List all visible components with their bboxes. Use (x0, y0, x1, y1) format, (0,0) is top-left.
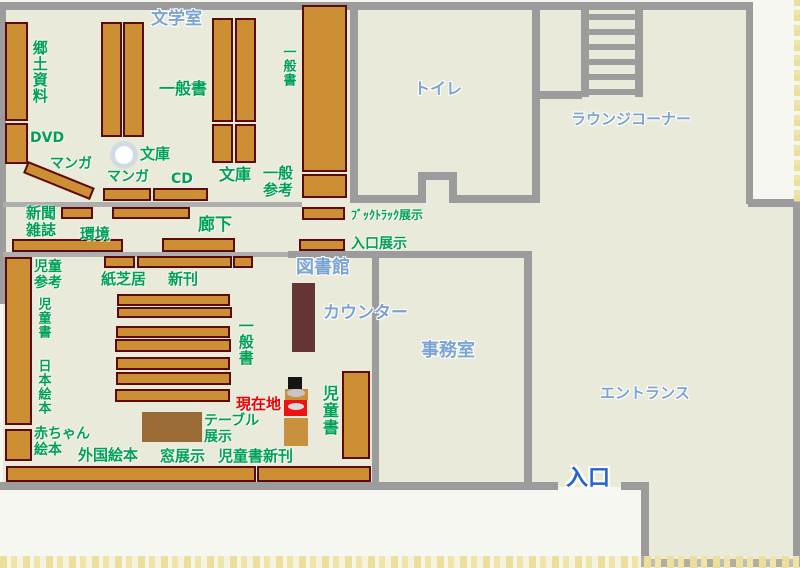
bookshelf (104, 256, 135, 268)
bookshelf (235, 124, 256, 163)
bookshelf (116, 326, 230, 338)
label-cd: CD (171, 172, 193, 188)
bookshelf (302, 5, 347, 172)
marker-sign-ellipse (288, 403, 304, 410)
label-japanese-picture-books: 日本絵本 (35, 359, 50, 415)
label-children-books-left: 児童書 (35, 297, 50, 339)
label-library: 図書館 (296, 258, 350, 278)
wall-vestibule-left (641, 483, 649, 567)
label-general-books-children: 一般書 (237, 318, 254, 366)
label-corridor: 廊下 (198, 216, 232, 235)
label-counter: カウンター (323, 304, 408, 323)
bookshelf (101, 22, 122, 137)
label-bunko-right: 文庫 (219, 166, 251, 184)
display-table (142, 412, 202, 442)
label-bunko-pillar: 文庫 (140, 146, 170, 163)
bookshelf (342, 371, 370, 459)
label-office: 事務室 (421, 341, 475, 361)
bookshelf (5, 257, 32, 425)
bookshelf (112, 207, 190, 219)
label-children-reference: 児童 参考 (34, 260, 62, 291)
label-table-display: テーブル 展示 (204, 414, 259, 445)
bookshelf (116, 372, 231, 385)
label-general-reference: 一般 参考 (263, 165, 293, 199)
label-environment: 環境 (80, 226, 110, 243)
label-window-display: 窓展示 (160, 448, 205, 465)
label-booktruck-display: ﾌﾞｯｸﾄﾗｯｸ展示 (351, 209, 423, 222)
label-local-materials: 郷土資料 (31, 40, 48, 104)
bookshelf (61, 207, 93, 219)
bookshelf (5, 22, 28, 121)
marker-body (284, 418, 308, 446)
bookshelf (299, 239, 345, 251)
stairs (581, 2, 643, 97)
bookshelf (302, 207, 345, 220)
wall-right-upper (746, 2, 753, 204)
bookshelf (212, 124, 233, 163)
label-new-books: 新刊 (168, 271, 198, 288)
bookshelf (5, 123, 28, 164)
label-manga-diagonal: マンガ (50, 157, 92, 173)
label-current-location: 現在地 (236, 396, 281, 413)
counter-desk (292, 283, 315, 352)
wall-toilet-left (350, 2, 358, 203)
stair-step (587, 44, 637, 50)
wall-toilet-right (532, 2, 540, 203)
wall-toilet-bottom-right (457, 195, 540, 203)
bookshelf (117, 294, 230, 306)
bookshelf (302, 174, 347, 198)
stair-step (587, 14, 637, 20)
label-toilet: トイレ (414, 80, 462, 98)
bookshelf (5, 429, 32, 461)
stair-step (587, 59, 637, 65)
label-children-new-books: 児童書新刊 (218, 448, 293, 465)
bookshelf (6, 466, 256, 482)
bookshelf (233, 256, 253, 268)
label-children-books-right: 児童書 (320, 385, 338, 436)
label-foreign-picture-books: 外国絵本 (78, 447, 138, 464)
wall-office-left (372, 251, 379, 483)
library-floor-plan: 文学室郷土資料DVDマンガ一般書文庫マンガCD文庫一般 参考一般書トイレラウンジ… (0, 0, 800, 568)
wall-bottom-main (0, 482, 558, 490)
label-entrance-hall: エントランス (600, 385, 690, 402)
label-kamishibai: 紙芝居 (101, 271, 146, 288)
wall-lounge-step (536, 91, 582, 99)
stair-step (587, 89, 637, 95)
label-lounge-corner: ラウンジコーナー (571, 111, 691, 128)
wall-bottom-gap-right (621, 482, 649, 490)
bookshelf (153, 188, 208, 201)
bookshelf (257, 466, 371, 482)
bookshelf (117, 307, 232, 318)
wall-right-lower (793, 204, 800, 566)
label-general-books-top: 一般書 (159, 80, 207, 98)
bookshelf (123, 22, 144, 137)
label-literature-room: 文学室 (151, 10, 202, 29)
wall-bottom-right (648, 559, 800, 567)
label-dvd: DVD (30, 131, 64, 147)
floor-entrance-vestibule (645, 487, 797, 564)
label-general-books-wall: 一般書 (280, 45, 295, 87)
bookshelf (115, 339, 231, 352)
bookshelf (103, 188, 151, 201)
label-newspapers-magazines: 新聞 雑誌 (26, 205, 56, 239)
marker-shoulder-ellipse (287, 389, 305, 397)
stair-step (587, 29, 637, 35)
bookshelf (137, 256, 232, 268)
bookshelf (116, 357, 230, 370)
bookshelf (162, 238, 235, 252)
wall-toilet-alcove-top (418, 172, 457, 180)
wall-office-right (524, 251, 532, 483)
label-entrance-door: 入口 (566, 467, 610, 492)
stair-step (587, 74, 637, 80)
label-manga-2: マンガ (107, 170, 149, 186)
bookshelf (115, 389, 230, 402)
bookshelf (235, 18, 256, 122)
wall-toilet-bottom-left (350, 195, 418, 203)
label-entrance-display: 入口展示 (351, 237, 407, 253)
floor-right-strip (749, 204, 797, 487)
page-background: 文学室郷土資料DVDマンガ一般書文庫マンガCD文庫一般 参考一般書トイレラウンジ… (0, 0, 800, 568)
bookshelf (212, 18, 233, 122)
pillar-column (113, 144, 135, 166)
